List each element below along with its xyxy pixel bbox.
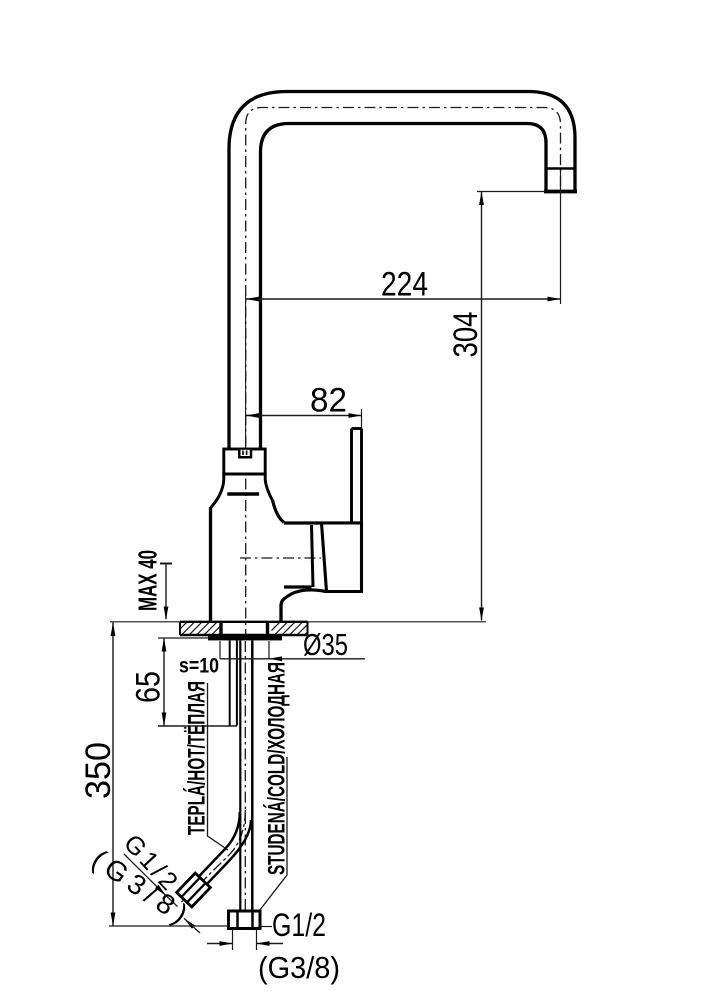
svg-text:TEPLÁ/HOT/ТЁПЛАЯ: TEPLÁ/HOT/ТЁПЛАЯ <box>183 681 211 835</box>
svg-text:Ø35: Ø35 <box>303 627 348 662</box>
svg-text:s=10: s=10 <box>179 654 219 678</box>
svg-text:G1/2: G1/2 <box>272 907 326 943</box>
svg-text:304: 304 <box>447 312 485 358</box>
svg-text:(G3/8): (G3/8) <box>258 951 340 985</box>
svg-text:350: 350 <box>79 742 118 799</box>
svg-text:MAX 40: MAX 40 <box>133 550 163 611</box>
svg-text:65: 65 <box>130 671 168 703</box>
svg-text:82: 82 <box>310 382 347 420</box>
svg-text:224: 224 <box>381 266 428 304</box>
svg-text:STUDENÁ/COLD/ХОЛОДНАЯ: STUDENÁ/COLD/ХОЛОДНАЯ <box>263 662 291 875</box>
